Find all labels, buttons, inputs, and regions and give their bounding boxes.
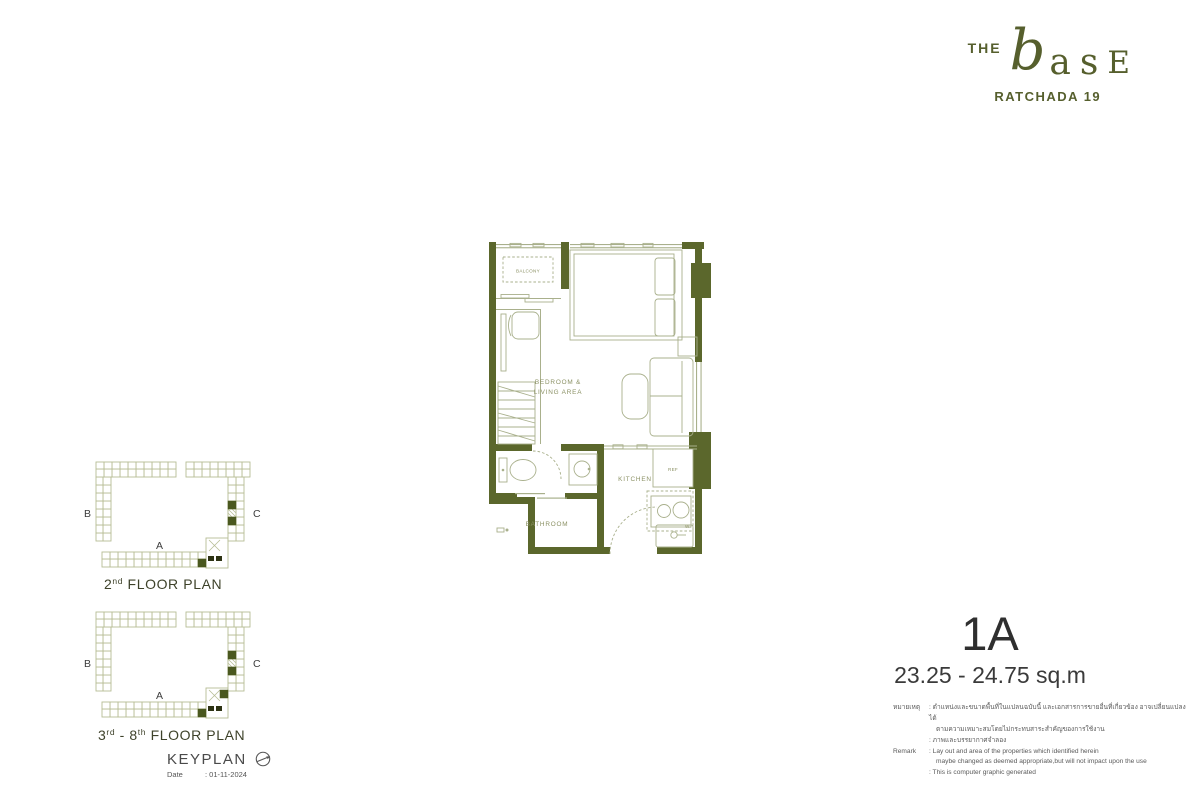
project-name: RATCHADA 19	[968, 89, 1128, 104]
wing-c-label: C	[253, 658, 261, 670]
bathroom-door-swing	[533, 451, 561, 479]
sofa	[650, 358, 693, 436]
entrance-door-swing	[610, 507, 657, 554]
wing-c-label: C	[253, 508, 261, 520]
date-label: Date	[167, 770, 205, 779]
keyplan-3rd-8th-caption: 3rd - 8th FLOOR PLAN	[98, 727, 245, 743]
bedroom-label-line1: BEDROOM &	[535, 379, 581, 386]
date-value: : 01-11-2024	[205, 770, 247, 779]
brand-logo: THE b as E RATCHADA 19	[968, 26, 1130, 104]
keyplan-3rd-8th-floor: B C A	[82, 610, 272, 724]
keyplan-2nd-caption: 2nd FLOOR PLAN	[104, 576, 222, 592]
kitchen-label: KITCHEN	[618, 476, 652, 483]
pillow	[655, 258, 675, 295]
living-window	[696, 362, 697, 432]
balcony-label: BALCONY	[516, 269, 540, 274]
remark-row: : ภาพและบรรยากาศจำลอง	[893, 736, 1193, 747]
logo-base-as: as	[1049, 42, 1107, 83]
unit-area: 23.25 - 24.75 sq.m	[880, 662, 1100, 689]
wing-b-label: B	[84, 508, 91, 520]
keyplan-title: KEYPLAN	[167, 751, 247, 768]
remark-block: หมายเหตุ : ตำแหน่งและขนาดพื้นที่ในแปลนฉบ…	[893, 703, 1193, 779]
remark-row: หมายเหตุ : ตำแหน่งและขนาดพื้นที่ในแปลนฉบ…	[893, 703, 1193, 725]
desk-shelf	[501, 314, 506, 371]
remark-row: maybe changed as deemed appropriate,but …	[893, 757, 1193, 768]
toilet-bowl	[510, 460, 536, 481]
wing-b-label: B	[84, 658, 91, 670]
bathroom-label: BATHROOM	[526, 521, 569, 528]
faucet	[671, 532, 677, 538]
sofa-cushions	[650, 361, 682, 433]
balcony-railing	[496, 244, 561, 245]
stove	[651, 496, 691, 527]
washer-label: W.	[685, 524, 691, 529]
remark-row: Remark : Lay out and area of the propert…	[893, 747, 1193, 758]
walls	[489, 242, 711, 554]
north-arrow-icon	[254, 750, 272, 768]
coffee-table	[622, 374, 648, 419]
pillow	[655, 299, 675, 336]
keyplan-2nd-floor: B C A	[82, 460, 272, 574]
bedroom-window	[570, 244, 682, 245]
burner	[658, 505, 671, 518]
chair-back	[509, 315, 512, 336]
bathroom-partition	[496, 493, 517, 499]
desk-edge	[496, 309, 540, 310]
kitchen-boundary	[604, 446, 697, 447]
remark-row: : This is computer graphic generated	[893, 768, 1193, 779]
bathroom-partition	[565, 493, 597, 499]
vanity	[569, 454, 597, 485]
logo-base-b: b	[1010, 26, 1046, 76]
remark-row: ตามความเหมาะสมโดยไม่กระทบสาระสำคัญของการ…	[893, 725, 1193, 736]
desk-chair	[512, 312, 539, 339]
bathroom-sliding-door	[515, 493, 545, 494]
unit-name: 1A	[880, 606, 1100, 661]
ref-label: REF	[668, 467, 678, 472]
logo-the-text: THE	[968, 40, 1002, 56]
logo-base-e: E	[1107, 45, 1130, 81]
bathroom-fixture	[497, 528, 504, 532]
wing-a-label: A	[156, 540, 163, 552]
burner	[673, 502, 689, 518]
unit-floor-plan: BALCONY BEDROOM & LIVING AREA BATHROOM K…	[485, 237, 715, 562]
bedroom-label-line2: LIVING AREA	[534, 389, 583, 396]
basin	[574, 461, 590, 477]
wing-a-label: A	[156, 690, 163, 702]
column-top-right	[691, 263, 711, 298]
